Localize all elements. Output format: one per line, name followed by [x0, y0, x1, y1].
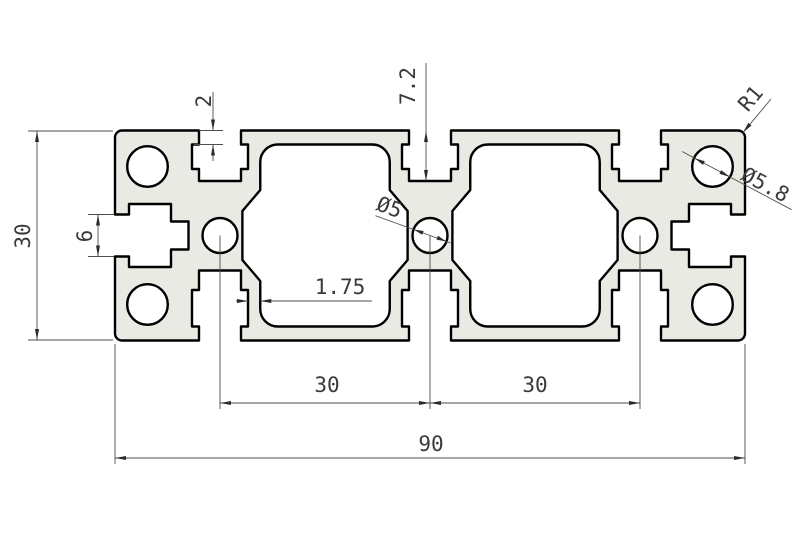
arrowhead: [734, 456, 745, 460]
dimension-corner-radius: R1: [733, 81, 771, 133]
cavity-left: [242, 145, 407, 327]
cavity-right: [452, 145, 617, 327]
extrusion-profile-drawing: 30 6 2 7.2 R1 Ø5.8 Ø5: [0, 0, 804, 557]
corner-hole-bottom-right: [692, 284, 733, 325]
arrowhead: [237, 299, 248, 303]
corner-hole-bottom-left: [127, 284, 168, 325]
corner-hole-top-right: [692, 146, 733, 187]
lip-thickness-label: 2: [192, 95, 216, 108]
arrowhead: [35, 131, 39, 142]
slot-depth-label: 7.2: [396, 67, 420, 105]
corner-radius-label: R1: [733, 81, 768, 116]
technical-drawing-page: 30 6 2 7.2 R1 Ø5.8 Ø5: [0, 0, 804, 557]
corner-hole-top-left: [127, 146, 168, 187]
slot-opening-label: 6: [73, 230, 97, 243]
overall-height-label: 30: [11, 223, 35, 248]
dimension-slot-opening: 6: [73, 215, 114, 257]
arrowhead: [430, 401, 441, 405]
hole-pitch-left-label: 30: [314, 373, 339, 397]
dimension-lines: [28, 131, 113, 340]
arrowhead: [96, 215, 100, 226]
arrowhead: [115, 456, 126, 460]
hole-pitch-right-label: 30: [522, 373, 547, 397]
arrowhead: [96, 246, 100, 257]
arrowhead: [629, 401, 640, 405]
overall-width-label: 90: [418, 432, 443, 456]
arrowhead: [220, 401, 231, 405]
arrowhead: [211, 120, 215, 131]
arrowhead: [424, 131, 428, 142]
arrowhead: [211, 145, 215, 156]
arrowhead: [419, 401, 430, 405]
dimension-lip-thickness: 2: [192, 92, 223, 161]
arrowhead: [424, 170, 428, 181]
arrowhead: [35, 329, 39, 340]
wall-thickness-label: 1.75: [315, 275, 366, 299]
